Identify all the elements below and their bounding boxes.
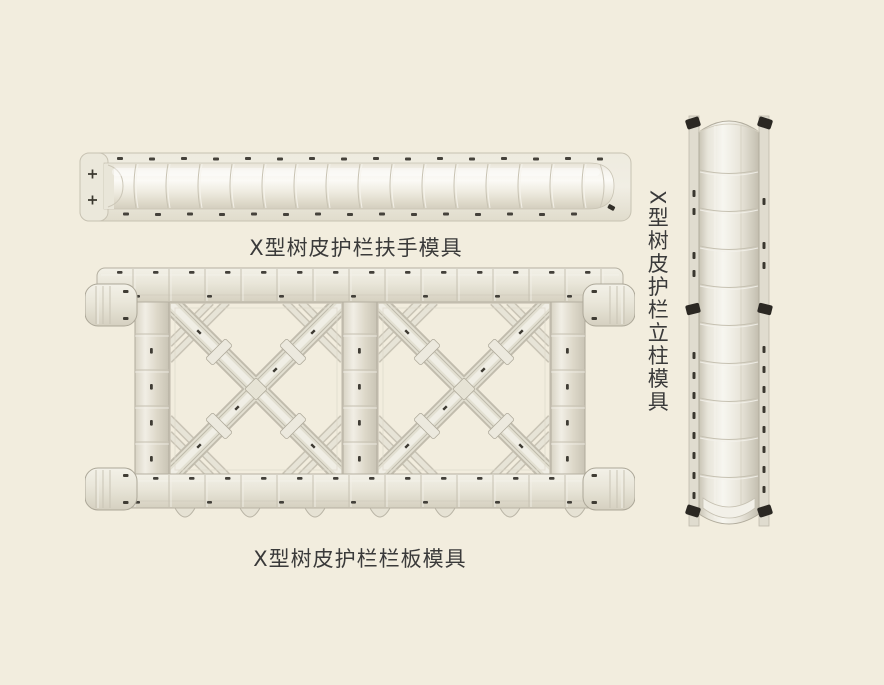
handrail-mold-photo <box>78 148 634 226</box>
column-mold-item: X型树皮护栏立柱模具 <box>640 102 774 546</box>
panel-mold-photo <box>85 262 635 534</box>
column-mold-photo <box>685 102 773 540</box>
handrail-mold-item: X型树皮护栏扶手模具 <box>78 148 634 261</box>
panel-mold-caption: X型树皮护栏栏板模具 <box>85 546 635 572</box>
handrail-mold-caption: X型树皮护栏扶手模具 <box>78 235 634 261</box>
panel-feet <box>175 508 585 517</box>
product-gallery: X型树皮护栏扶手模具 <box>0 0 884 685</box>
handrail-bolts-bottom <box>123 213 577 217</box>
column-mold-caption: X型树皮护栏立柱模具 <box>644 190 670 440</box>
panel-mold-item: X型树皮护栏栏板模具 <box>85 262 635 572</box>
